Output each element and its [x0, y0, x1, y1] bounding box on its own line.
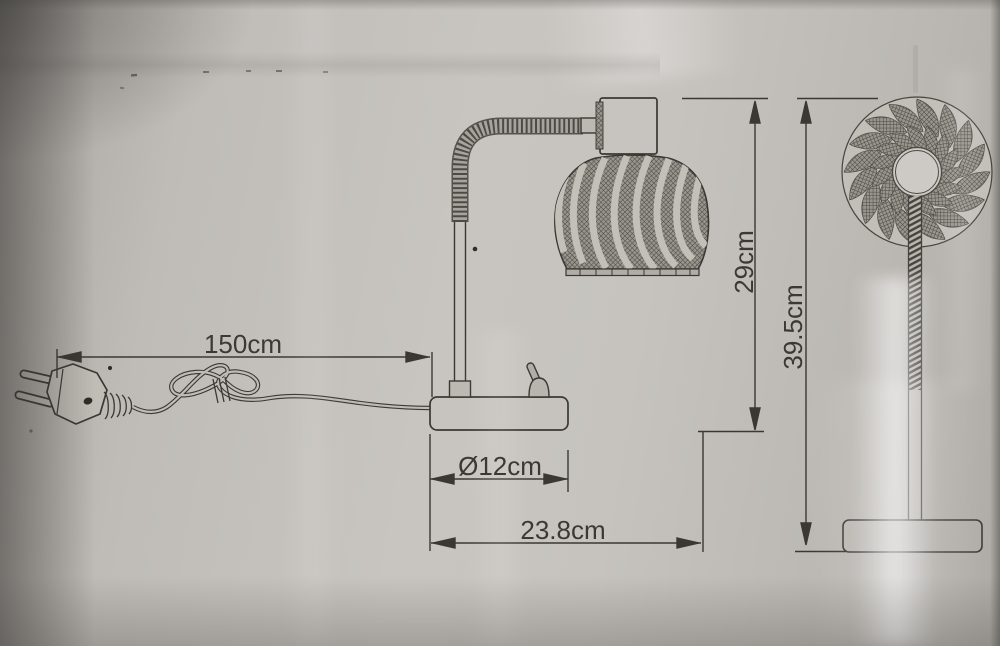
cord-grip — [104, 392, 132, 419]
arrow-down-icon — [750, 408, 760, 430]
arrow-left-icon — [433, 538, 455, 548]
arrow-down-icon — [801, 523, 811, 545]
dim-label-cord-length: 150cm — [183, 329, 303, 359]
arrow-up-icon — [801, 101, 811, 123]
pole-side — [450, 220, 471, 397]
shade-rim — [566, 269, 699, 276]
front-view — [841, 96, 993, 552]
power-cord — [133, 365, 430, 412]
lamp-base-front — [843, 520, 982, 552]
dim-label-total-height: 39.5cm — [778, 267, 808, 387]
disc-center-hole — [893, 148, 942, 197]
lamp-technical-drawing — [0, 0, 1000, 646]
side-view — [19, 98, 709, 430]
dim-label-base-diameter: Ø12cm — [440, 451, 560, 481]
pole-front — [909, 196, 922, 520]
arrow-right-icon — [677, 538, 699, 548]
arrow-right-icon — [406, 352, 428, 362]
arrow-left-icon — [59, 352, 81, 362]
lamp-head — [600, 98, 657, 154]
dim-label-lamp-height: 29cm — [729, 202, 759, 322]
packaging-dimension-diagram: 150cm Ø12cm 23.8cm 29cm 39.5cm — [0, 0, 1000, 646]
pole-collar — [450, 381, 471, 397]
lamp-base-side — [430, 397, 568, 430]
arrow-up-icon — [750, 101, 760, 123]
head-side-plate — [596, 102, 603, 149]
power-switch[interactable] — [526, 362, 549, 397]
shade-side — [555, 155, 709, 276]
power-plug — [19, 364, 132, 424]
plug-pin-icon — [19, 395, 50, 403]
dim-label-depth: 23.8cm — [503, 515, 623, 545]
